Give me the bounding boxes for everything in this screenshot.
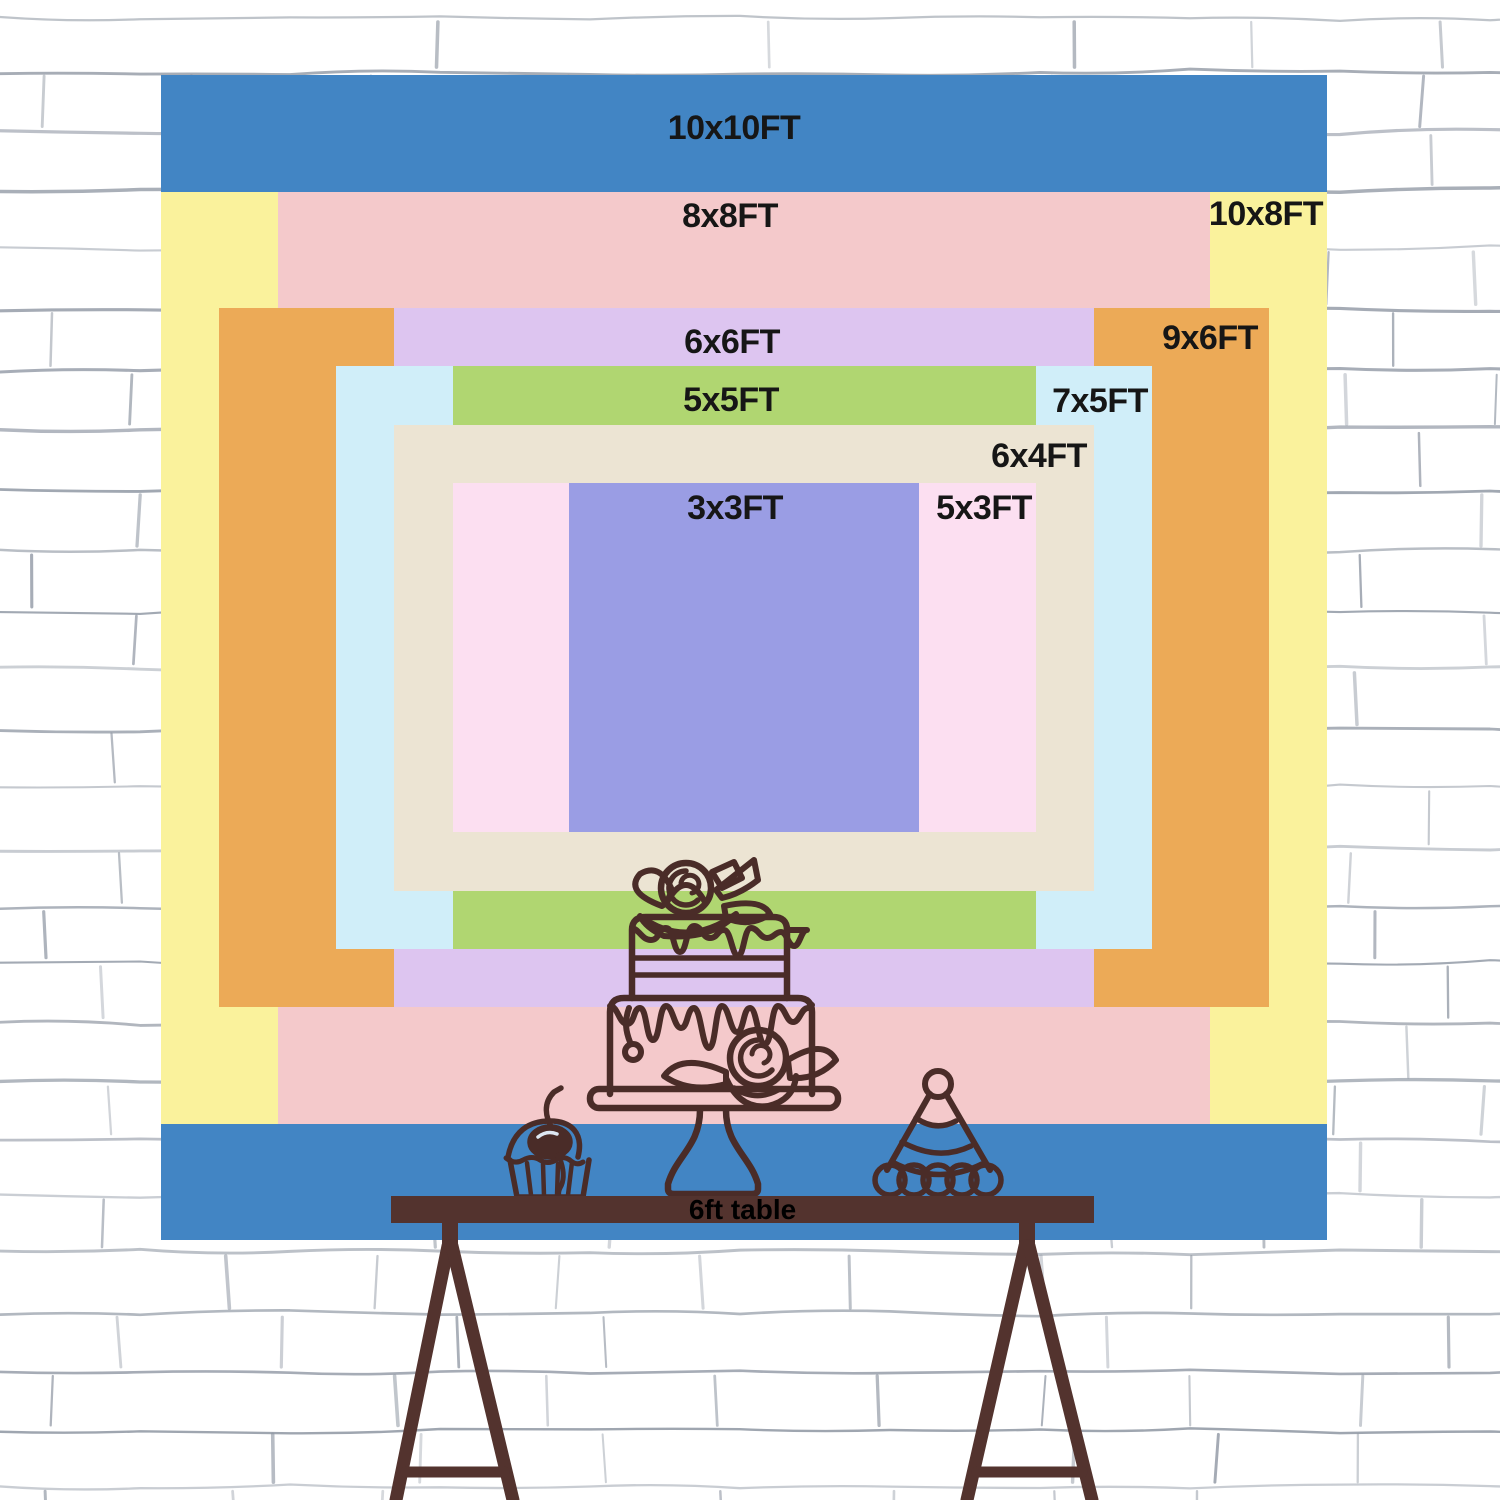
birthday-cake-illustration — [590, 860, 838, 1194]
decorations — [0, 0, 1500, 1500]
party-hat-illustration — [875, 1071, 1001, 1195]
table-legs-right — [967, 1218, 1092, 1500]
cupcake-illustration — [506, 1088, 589, 1201]
scene: 10x10FT10x8FT8x8FT9x6FT6x6FT7x5FT5x5FT6x… — [0, 0, 1500, 1500]
table-size-label: 6ft table — [689, 1196, 796, 1224]
table-legs-left — [396, 1218, 513, 1500]
table-top: 6ft table — [391, 1196, 1094, 1223]
